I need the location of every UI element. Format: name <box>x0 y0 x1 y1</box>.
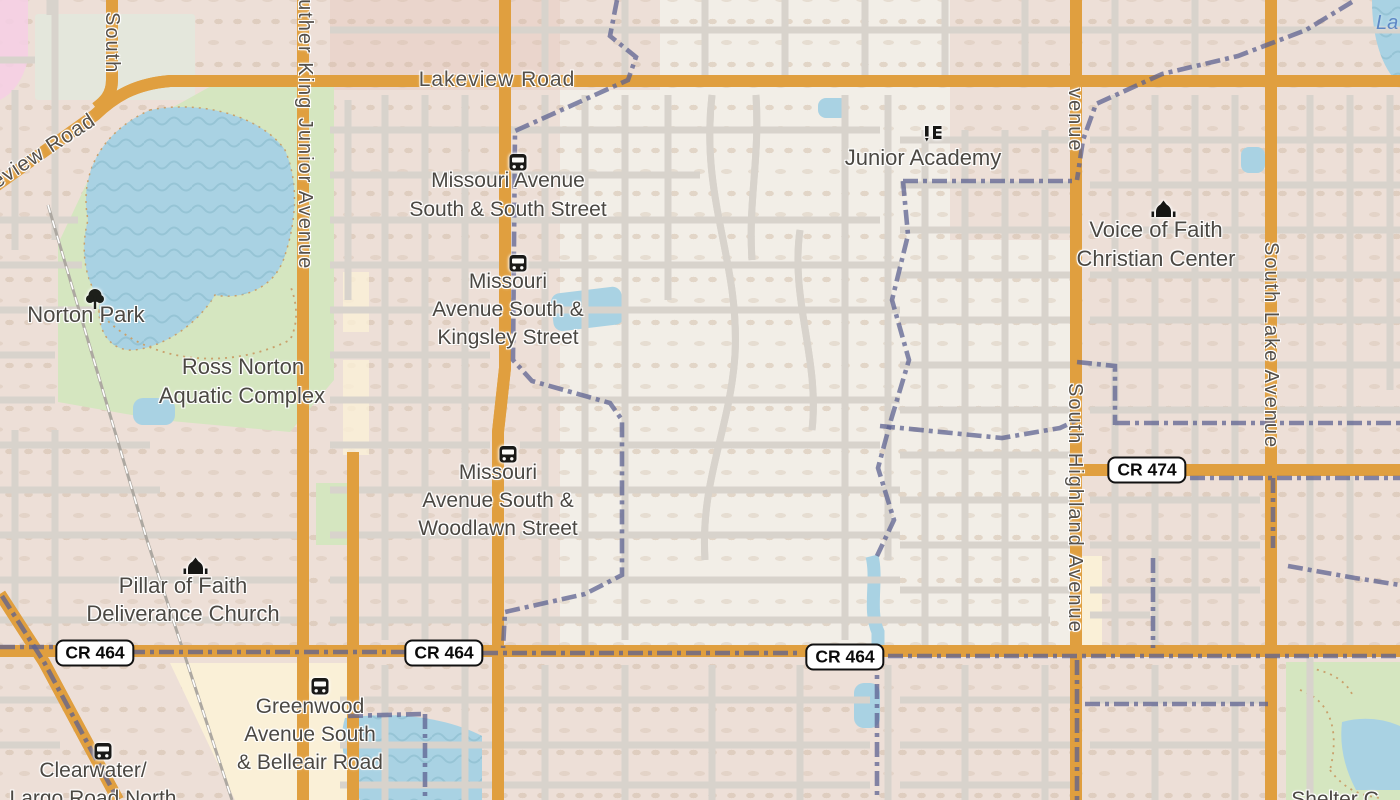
bus-stop-label: Kingsley Street <box>437 326 578 350</box>
stream <box>872 556 878 652</box>
bus-stop-label: South & South Street <box>409 198 606 222</box>
hospital-area <box>0 0 28 100</box>
street-label-south-highland-avenue: South Highland Avenue <box>1063 383 1086 634</box>
poi-label-ross-norton: Aquatic Complex <box>159 383 325 409</box>
bus-stop-label: Avenue South & <box>422 489 573 513</box>
street-label-lakeview-road: Lakeview Road <box>419 68 576 92</box>
bus-stop-label: Clearwater/ <box>39 759 146 783</box>
pond <box>1241 147 1265 173</box>
bus-stop-label: Avenue South & <box>432 298 583 322</box>
poi-label-voice-of-faith: Voice of Faith <box>1089 217 1222 243</box>
poi-label-norton-park: Norton Park <box>27 302 144 328</box>
street-label-highland-avenue-partial: venue <box>1063 88 1086 153</box>
poi-label-pillar-of-faith: Deliverance Church <box>86 601 279 627</box>
poi-label-junior-academy: Junior Academy <box>845 145 1002 171</box>
bus-stop-label: Missouri <box>459 461 537 485</box>
poi-label-voice-of-faith: Christian Center <box>1077 246 1236 272</box>
route-shield: CR 464 <box>404 640 483 667</box>
route-shield: CR 464 <box>55 640 134 667</box>
route-shield: CR 464 <box>805 644 884 671</box>
map-canvas[interactable]: CR 464 CR 464 CR 464 CR 474 Lakeview Roa… <box>0 0 1400 800</box>
bus-stop-label: Avenue South <box>244 723 376 747</box>
route-shield: CR 474 <box>1107 457 1186 484</box>
bus-stop-label: Missouri <box>469 270 547 294</box>
poi-label-ross-norton: Ross Norton <box>182 354 304 380</box>
bus-stop-label: & Belleair Road <box>237 751 383 775</box>
poi-label-pillar-of-faith: Pillar of Faith <box>119 573 247 599</box>
street-label-south-lake-avenue: South Lake Avenue <box>1259 242 1282 449</box>
water-label: La <box>1376 12 1398 35</box>
street-label-luther-king-junior-avenue: Luther King Junior Avenue <box>293 0 316 270</box>
bus-stop-label: Missouri Avenue <box>431 169 585 193</box>
bus-stop-label: Woodlawn Street <box>418 517 578 541</box>
bus-stop-label: Greenwood <box>256 695 365 719</box>
street-label-south: South <box>100 12 123 74</box>
poi-label-shelter: Shelter C <box>1291 788 1379 800</box>
bus-stop-label: Largo Road North <box>10 787 177 800</box>
